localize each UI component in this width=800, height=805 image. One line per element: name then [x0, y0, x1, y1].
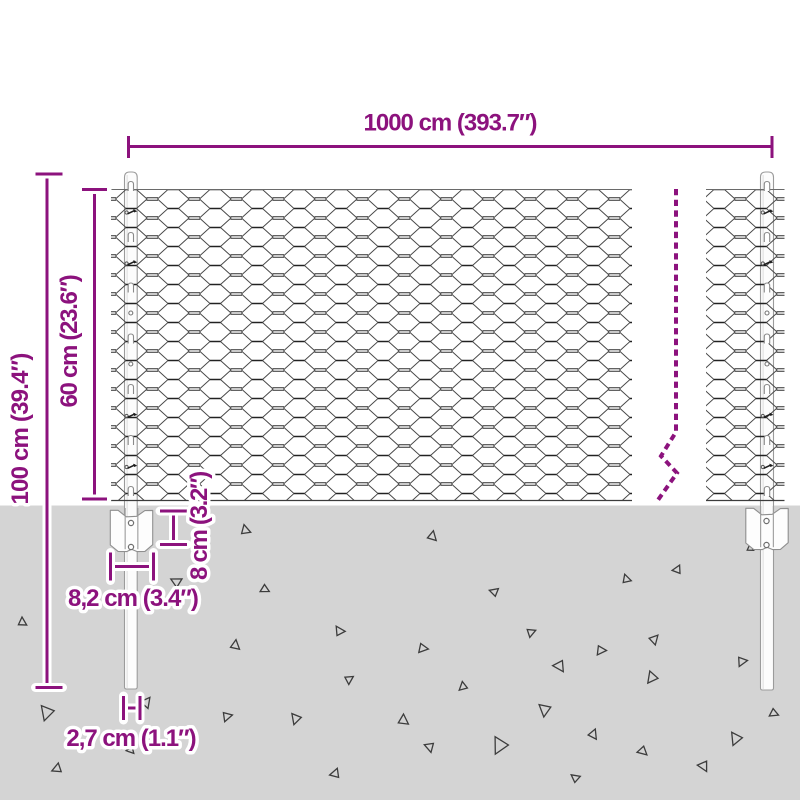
svg-text:1000 cm (393.7″): 1000 cm (393.7″) [364, 110, 537, 137]
svg-text:60 cm (23.6″): 60 cm (23.6″) [56, 275, 83, 407]
svg-text:2,7 cm (1.1″): 2,7 cm (1.1″) [66, 725, 195, 752]
svg-text:8 cm (3.2″): 8 cm (3.2″) [186, 472, 213, 580]
svg-text:100 cm (39.4″): 100 cm (39.4″) [7, 353, 34, 504]
svg-text:8,2 cm (3.4″): 8,2 cm (3.4″) [68, 585, 198, 612]
